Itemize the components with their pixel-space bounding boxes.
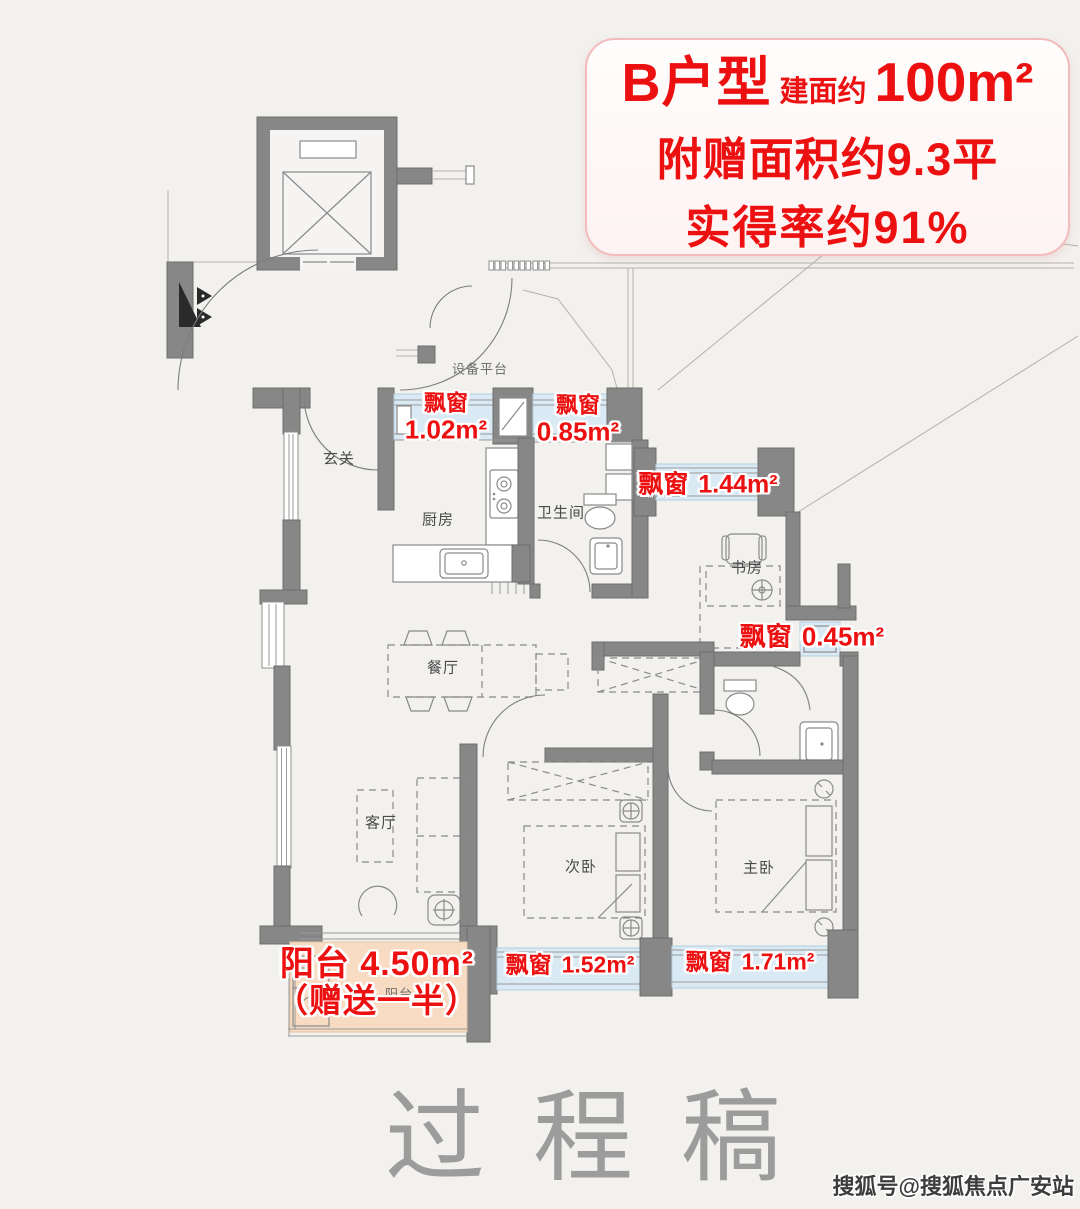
elevator	[257, 117, 474, 271]
bathroom-door-arc	[538, 540, 590, 592]
bay2-name: 飘窗	[537, 394, 619, 418]
bay4-name: 飘窗	[740, 622, 792, 652]
area-value: 100m²	[875, 50, 1034, 114]
louver-strip	[489, 261, 550, 270]
room-label-bathroom: 卫生间	[537, 502, 585, 523]
bay2-annotation: 飘窗 0.85m²	[537, 394, 619, 447]
bay4-annotation: 飘窗0.45m²	[740, 623, 884, 652]
living-room	[300, 778, 469, 939]
second-bedroom	[508, 762, 648, 939]
room-label-kitchen: 厨房	[422, 509, 454, 530]
unit-model: B户型	[622, 38, 772, 117]
bay2-area: 0.85m²	[537, 418, 619, 447]
efficiency-line: 实得率约91%	[685, 191, 969, 256]
credit-text: 搜狐号@搜狐焦点广安站	[833, 1169, 1074, 1201]
bedroom2-door-arc	[483, 695, 545, 757]
room-label-equipment-platform: 设备平台	[452, 359, 508, 378]
bathroom2-door-arc	[714, 710, 760, 756]
balcony-gift-note: （赠送一半）	[275, 984, 479, 1020]
master-bedroom	[716, 780, 836, 936]
bay6-area: 1.71m²	[742, 948, 815, 974]
master-door-arc	[668, 767, 712, 811]
dining	[388, 631, 568, 711]
balcony-area: 阳台 4.50m²	[275, 946, 479, 983]
room-label-second-bedroom: 次卧	[565, 856, 597, 877]
bay5-area: 1.52m²	[562, 951, 635, 977]
area-prefix: 建面约	[780, 68, 867, 110]
bonus-area-line: 附赠面积约9.3平	[657, 123, 999, 188]
left-wall	[260, 388, 322, 944]
room-label-study: 书房	[731, 557, 763, 578]
bay6-name: 飘窗	[686, 948, 732, 974]
hallway	[592, 642, 714, 692]
bottom-walls-and-bays	[460, 926, 858, 1042]
watermark: 过程稿	[385, 1056, 829, 1201]
bay3-name: 飘窗	[638, 470, 688, 498]
room-label-dining: 餐厅	[427, 657, 459, 678]
title-card: B户型 建面约 100m² 附赠面积约9.3平 实得率约91%	[585, 38, 1070, 256]
bay1-area: 1.02m²	[405, 416, 487, 445]
balcony-annotation: 阳台 4.50m² （赠送一半）	[275, 946, 479, 1020]
bay5-name: 飘窗	[506, 951, 552, 977]
bay4-area: 0.45m²	[802, 622, 884, 652]
room-label-master-bedroom: 主卧	[743, 857, 775, 878]
bay6-annotation: 飘窗1.71m²	[686, 949, 815, 974]
floorplan-page: 玄关 设备平台 厨房 卫生间 书房 餐厅 客厅 次卧 主卧 阳台 飘窗 1.02…	[0, 0, 1080, 1209]
bay3-annotation: 飘窗1.44m²	[638, 471, 777, 499]
bathroom-2	[700, 652, 858, 770]
lobby	[167, 250, 512, 408]
bay3-area: 1.44m²	[698, 470, 777, 498]
room-label-entry: 玄关	[323, 448, 355, 469]
room-label-living: 客厅	[365, 812, 397, 833]
title-line1: B户型 建面约 100m²	[622, 38, 1034, 117]
bay1-annotation: 飘窗 1.02m²	[405, 392, 487, 445]
bay5-annotation: 飘窗1.52m²	[506, 952, 635, 977]
bay1-name: 飘窗	[405, 392, 487, 416]
bedroom-walls	[460, 656, 858, 940]
